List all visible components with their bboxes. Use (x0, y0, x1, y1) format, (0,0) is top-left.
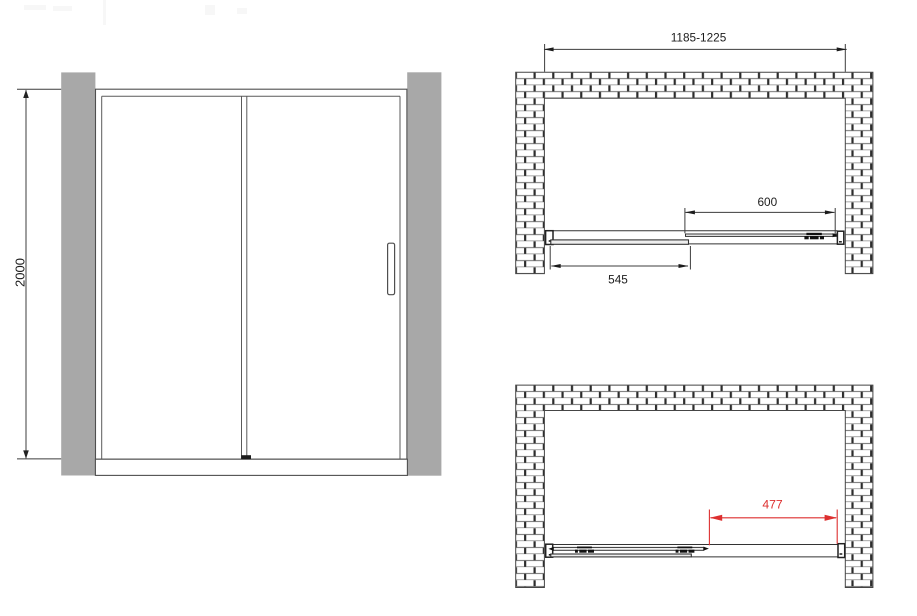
svg-text:2000: 2000 (13, 258, 28, 287)
svg-text:600: 600 (757, 195, 777, 209)
svg-text:545: 545 (608, 272, 628, 286)
svg-text:477: 477 (762, 498, 783, 512)
svg-text:1185-1225: 1185-1225 (671, 30, 727, 44)
